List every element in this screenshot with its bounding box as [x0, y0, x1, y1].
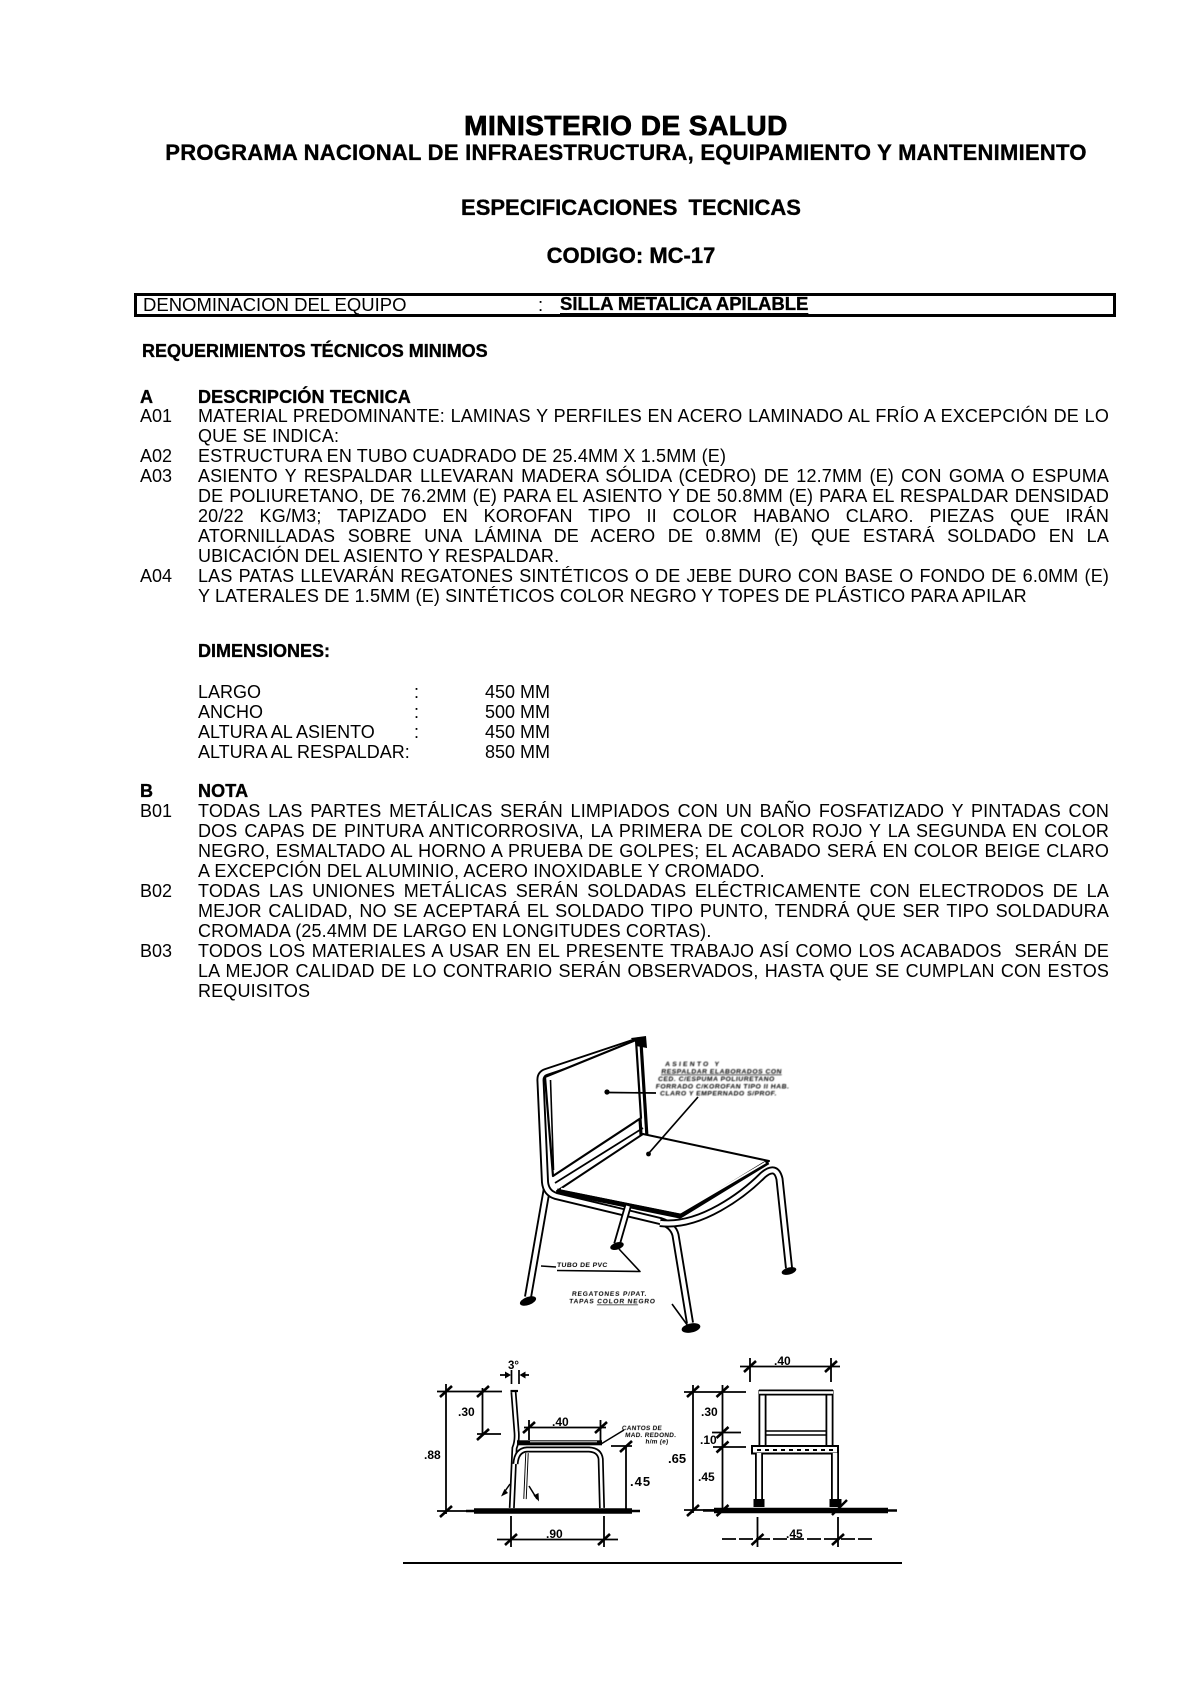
svg-text:.10: .10 — [700, 1433, 717, 1447]
svg-text:TUBO DE PVC: TUBO DE PVC — [557, 1262, 608, 1269]
svg-text:.65: .65 — [668, 1451, 686, 1466]
svg-text:RESPALDAR ELABORADOS CON: RESPALDAR ELABORADOS CON — [661, 1069, 782, 1076]
svg-text:ASIENTO Y: ASIENTO Y — [665, 1061, 722, 1068]
svg-text:.40: .40 — [774, 1354, 791, 1368]
svg-text:CANTOS DE: CANTOS DE — [621, 1425, 662, 1432]
svg-text:.45: .45 — [630, 1474, 651, 1489]
svg-text:CLARO Y EMPERNADO S/PROF.: CLARO Y EMPERNADO S/PROF. — [660, 1091, 778, 1098]
svg-text:FORRADO C/KOROFAN TIPO II HAB.: FORRADO C/KOROFAN TIPO II HAB. — [655, 1084, 789, 1091]
svg-text:.45: .45 — [698, 1470, 715, 1484]
svg-text:.90: .90 — [546, 1527, 563, 1541]
svg-text:h/m (e): h/m (e) — [645, 1439, 669, 1446]
svg-text:.30: .30 — [458, 1405, 475, 1419]
svg-text:.40: .40 — [552, 1415, 569, 1429]
svg-text:3°: 3° — [508, 1360, 519, 1372]
svg-text:TAPAS COLOR NEGRO: TAPAS COLOR NEGRO — [569, 1299, 656, 1306]
svg-text:REGATONES P/PAT.: REGATONES P/PAT. — [572, 1291, 648, 1298]
svg-text:.88: .88 — [424, 1448, 441, 1462]
svg-text:CED. C/ESPUMA POLIURETANO: CED. C/ESPUMA POLIURETANO — [658, 1076, 776, 1083]
svg-text:.30: .30 — [701, 1405, 718, 1419]
svg-text:.45: .45 — [786, 1527, 803, 1541]
